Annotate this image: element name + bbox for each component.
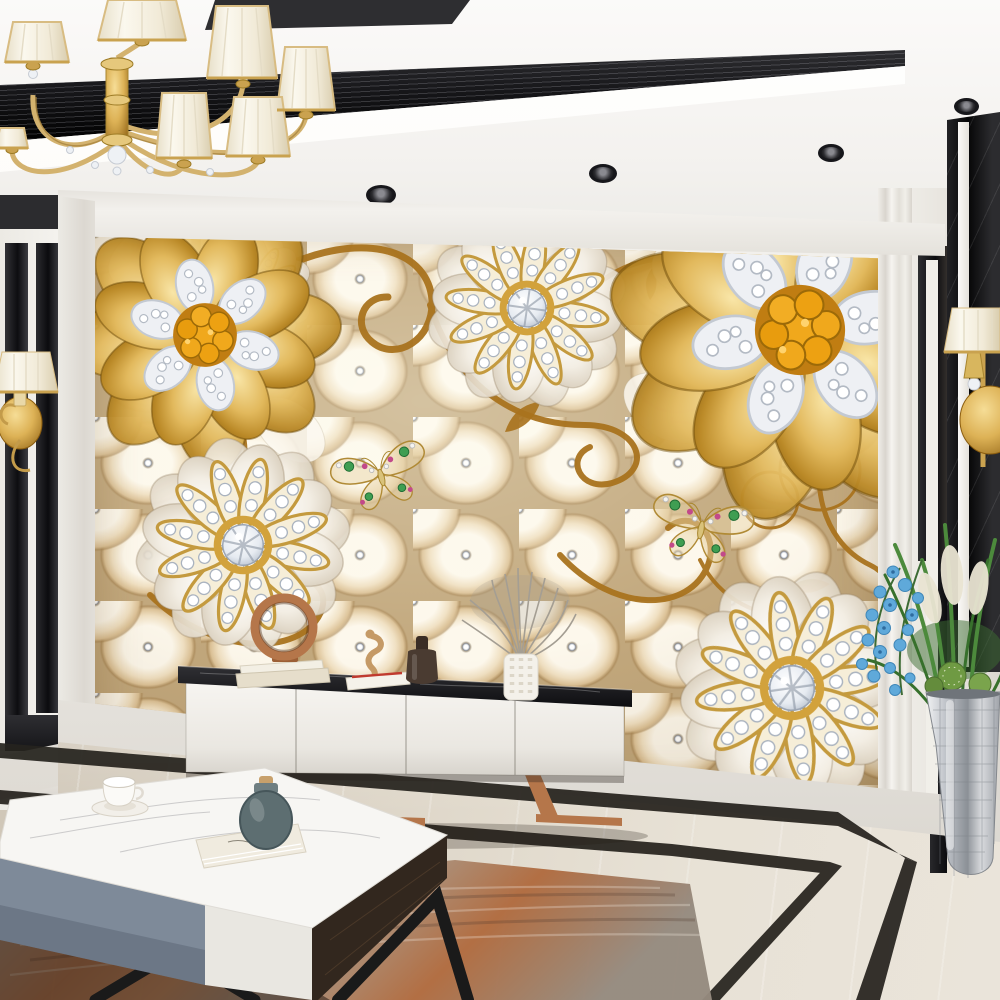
plant-arrangement [857, 525, 1000, 878]
living-room-scene [0, 0, 1000, 1000]
bottle-vase [406, 636, 438, 684]
furniture-layer [0, 0, 1000, 1000]
wall-sconce-right [944, 308, 1000, 467]
sconce-shade [0, 352, 58, 392]
chandelier [0, 0, 335, 176]
silver-mosaic-vase [926, 689, 1000, 878]
ring-sculpture [255, 598, 313, 662]
textured-vase-dried-plant [462, 568, 576, 700]
lamp-shades [0, 0, 335, 158]
wall-sconce-left [0, 352, 58, 471]
seahorse-figurine [360, 630, 387, 681]
